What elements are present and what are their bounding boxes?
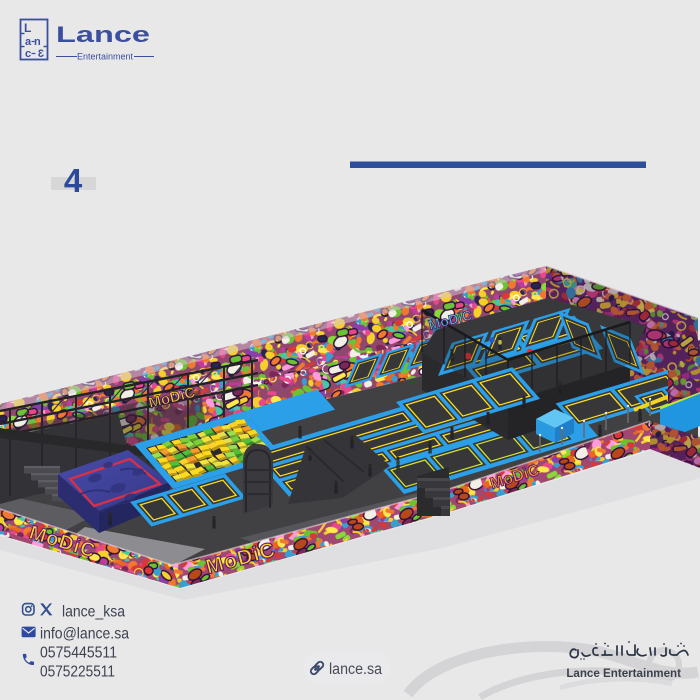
svg-text:c: c [25,48,31,60]
svg-text:L: L [24,21,31,35]
svg-text:info@lance.sa: info@lance.sa [40,626,129,643]
svg-text:Lance Entertainment: Lance Entertainment [566,667,681,680]
svg-text:0575225511: 0575225511 [40,664,115,681]
svg-text:a: a [25,36,32,48]
svg-text:4: 4 [64,162,83,199]
svg-text:3: 3 [38,48,44,60]
svg-text:Lance: Lance [56,22,150,47]
svg-text:lance_ksa: lance_ksa [62,604,125,621]
svg-text:n: n [34,36,41,48]
svg-text:0575445511: 0575445511 [40,645,117,662]
svg-text:lance.sa: lance.sa [329,661,382,678]
svg-text:Entertainment: Entertainment [77,52,134,62]
